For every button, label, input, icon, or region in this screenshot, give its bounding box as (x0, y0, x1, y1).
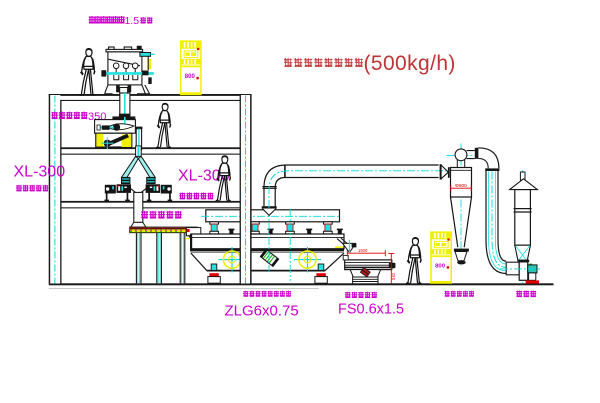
svg-text:540: 540 (391, 272, 396, 280)
svg-text:FS0.6x1.5: FS0.6x1.5 (338, 302, 404, 318)
svg-text:ZLG6x0.75: ZLG6x0.75 (225, 303, 299, 320)
svg-text:1500: 1500 (358, 248, 368, 253)
svg-text:XL-300: XL-300 (14, 164, 66, 181)
svg-text:1.5: 1.5 (125, 15, 140, 27)
svg-text:(500kg/h): (500kg/h) (364, 52, 456, 75)
